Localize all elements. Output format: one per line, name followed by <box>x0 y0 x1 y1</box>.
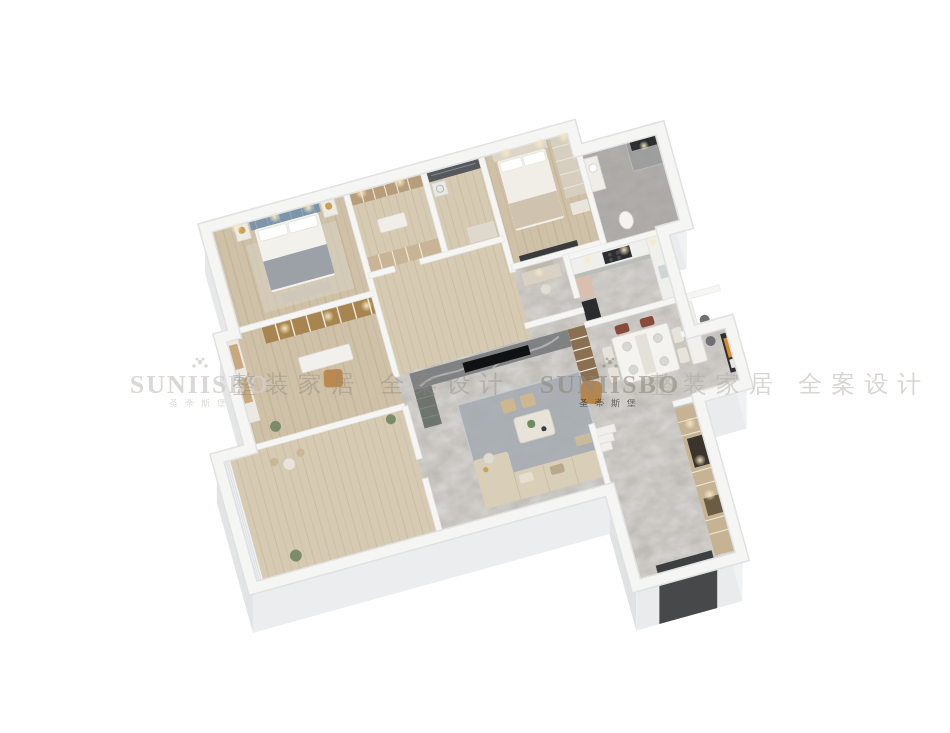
floorplan-render: SUNIISBO 圣蒂斯堡 整装家居 全案设计 SUNIISBO 圣蒂斯堡 整装… <box>0 0 950 733</box>
watermark-brand-cn: 圣蒂斯堡 <box>579 398 643 408</box>
render-canvas: SUNIISBO 圣蒂斯堡 整装家居 全案设计 SUNIISBO 圣蒂斯堡 整装… <box>0 0 950 733</box>
watermark-brand-cn: 圣蒂斯堡 <box>169 398 233 408</box>
watermark-tagline: 整装家居 全案设计 <box>232 370 513 398</box>
watermark-tagline: 整装家居 全案设计 <box>650 370 931 398</box>
